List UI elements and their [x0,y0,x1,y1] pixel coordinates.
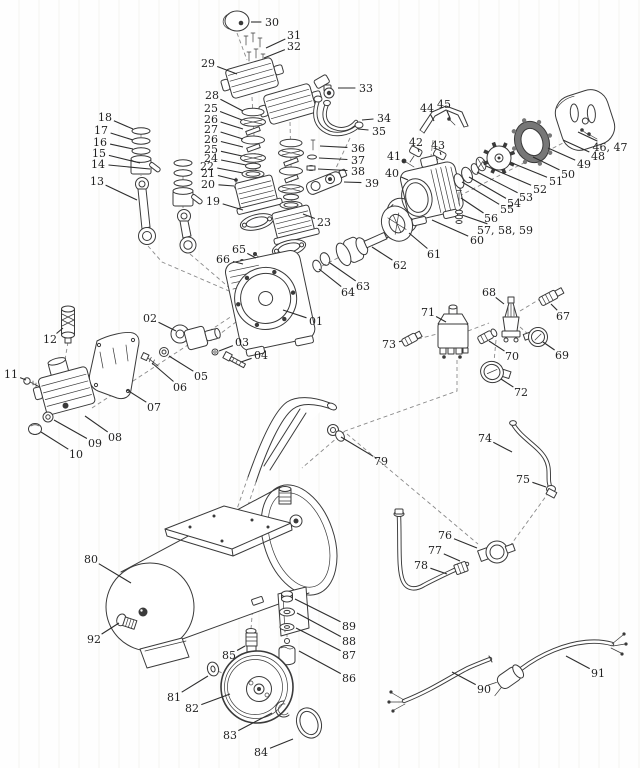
part-number-label: 40 [385,167,399,180]
callout-leader-line [566,656,590,669]
part-number-label: 11 [4,368,18,381]
callout-91: 91 [566,656,605,680]
part-number-label: 67 [556,310,570,323]
wheel-washer-drawing [206,661,220,677]
part-number-label: 04 [254,349,268,362]
callout-20: 20 [201,178,234,191]
air-filter-drawing [223,11,249,31]
part-number-label: 51 [549,175,563,188]
part-number-label: 72 [514,386,528,399]
callout-leader-line [219,185,235,186]
callout-70: 70 [489,341,519,363]
callout-leader-line [296,628,341,651]
callout-leader-line [219,346,233,351]
part-number-label: 91 [591,667,605,680]
part-number-label: 88 [342,635,356,648]
fitting-70-drawing [477,328,498,344]
fitting-79-drawing [328,425,347,443]
part-number-label: 03 [235,336,249,349]
part-number-label: 85 [222,649,236,662]
callout-67: 67 [551,304,570,323]
part-number-label: 43 [431,139,445,152]
check-valve-drawing [478,541,516,563]
part-number-label: 10 [69,448,83,461]
part-number-label: 75 [516,473,530,486]
part-number-label: 29 [201,57,215,70]
part-number-label: 66 [216,253,230,266]
callout-leader-line [454,539,477,548]
callout-leader-line [319,269,341,287]
part-number-label: 69 [555,349,569,362]
callout-leader-line [489,341,505,351]
callout-leader-line [221,132,243,139]
part-number-label: 83 [223,729,237,742]
head-bolts-drawing [244,33,265,63]
callout-leader-line [114,121,133,129]
part-number-label: 82 [185,702,199,715]
callout-leader-line [461,198,484,213]
part-number-label: 06 [173,381,187,394]
callout-leader-line [358,129,369,130]
washer-09-drawing [43,412,53,422]
callout-75: 75 [516,473,546,487]
part-number-label: 34 [377,112,391,125]
part-number-label: 35 [372,125,386,138]
part-number-label: 08 [108,431,122,444]
part-number-label: 42 [409,136,423,149]
callout-leader-line [111,133,133,140]
air-compressor-exploded-view: 3031322933343518171615141328252627262524… [0,0,640,768]
part-number-label: 50 [561,168,575,181]
callout-13: 13 [90,175,137,200]
callout-29: 29 [201,57,237,74]
manifold-drawing [305,168,349,196]
part-number-label: 80 [84,553,98,566]
callout-leader-line [169,356,193,371]
callout-64: 64 [319,269,355,299]
callout-leader-line [543,342,555,350]
callout-leader-line [512,163,547,177]
callout-74: 74 [478,432,512,452]
manifold-hardware-drawing [307,140,317,171]
callout-leader-line [493,442,512,452]
piston-assembly-2-drawing [173,160,203,253]
callout-leader-line [496,297,504,304]
callout-leader-line [399,341,402,342]
part-number-label: 07 [147,401,161,414]
callout-leader-line [320,146,347,147]
pressure-switch-drawing [438,305,468,359]
callout-leader-line [264,50,285,58]
part-number-label: 48 [591,150,605,163]
callout-90: 90 [452,672,491,696]
callout-11: 11 [4,368,26,381]
part-number-label: 73 [382,338,396,351]
part-number-label: 05 [194,370,208,383]
callout-03: 03 [219,336,249,351]
part-number-label: 23 [317,216,331,229]
callout-leader-line [477,172,518,193]
callout-leader-line [221,151,242,156]
callout-leader-line [221,142,243,148]
fan-drawing [478,137,520,179]
callout-leader-line [221,122,243,129]
filter-12-drawing [62,306,75,343]
callout-leader-line [501,379,513,387]
part-number-label: 45 [437,98,451,111]
callout-leader-line [372,247,392,260]
plug-10-drawing [29,424,42,435]
part-number-label: 13 [90,175,104,188]
diagram-page: 3031322933343518171615141328252627262524… [0,0,640,768]
callout-leader-line [106,185,137,200]
part-number-label: 70 [505,350,519,363]
callout-05: 05 [169,356,208,383]
callout-69: 69 [543,342,569,362]
part-number-label: 38 [351,165,365,178]
part-number-label: 81 [167,691,181,704]
part-number-label: 74 [478,432,492,445]
callout-84: 84 [254,739,293,759]
callout-leader-line [54,420,87,439]
callout-leader-line [127,390,146,402]
callout-leader-line [241,358,252,362]
part-number-label: 90 [477,683,491,696]
part-number-label: 14 [91,158,105,171]
callout-09: 09 [54,420,102,450]
callout-leader-line [237,646,245,651]
part-number-label: 02 [143,312,157,325]
callout-leader-line [152,363,174,382]
part-number-label: 01 [309,315,323,328]
callout-leader-line [220,99,243,111]
discharge-tubes-drawing [314,96,363,134]
callout-44: 44 [420,102,434,121]
part-number-label: 87 [342,649,356,662]
callout-02: 02 [143,312,176,331]
callout-leader-line [409,233,427,249]
part-number-label: 61 [427,248,441,261]
part-number-label: 92 [87,633,101,646]
mount-hardware-stack-drawing [280,591,295,631]
part-number-label: 53 [519,191,533,204]
bearing-washers-drawing [311,251,331,273]
callout-10: 10 [41,432,83,461]
part-number-label: 52 [533,183,547,196]
callout-leader-line [270,739,293,748]
callout-12: 12 [43,328,63,346]
callout-leader-line [85,416,108,432]
callout-68: 68 [482,286,504,304]
callout-07: 07 [127,390,161,414]
part-number-label: 55 [500,203,514,216]
callout-62: 62 [372,247,407,272]
gauge-69-drawing [523,328,547,347]
head-08-drawing [27,351,96,417]
callout-61: 61 [409,233,441,261]
callout-33: 33 [338,82,373,95]
part-number-label: 78 [414,559,428,572]
callout-71: 71 [421,306,446,322]
part-number-label: 64 [341,286,355,299]
cylinder-gasket-1-drawing [239,211,276,234]
callout-leader-line [548,148,575,160]
hub-cap-drawing [292,704,326,742]
callout-72: 72 [501,379,528,399]
part-number-label: 68 [482,286,496,299]
part-number-label: 39 [365,177,379,190]
callout-leader-line [362,119,374,120]
part-number-label: 57, 58, 59 [477,224,533,237]
motor-bolt-drawing [402,159,414,167]
callout-leader-line [218,176,236,181]
part-number-label: 49 [577,158,591,171]
callout-leader-line [444,554,460,561]
callout-92: 92 [87,623,119,646]
callout-32: 32 [264,40,301,58]
part-number-label: 84 [254,746,268,759]
pump-parts-left-drawing [141,322,247,369]
callout-leader-line [299,651,341,674]
callout-leader-line [266,39,285,48]
callout-leader-line [533,157,560,170]
part-number-label: 19 [206,195,220,208]
callout-leader-line [344,182,361,183]
callout-79: 79 [341,437,388,468]
piston-assembly-1-drawing [131,128,161,245]
fitting-75-drawing [546,486,557,498]
callout-leader-line [330,263,356,281]
callout-77: 77 [428,544,460,561]
part-number-label: 32 [287,40,301,53]
callout-leader-line [110,144,133,149]
callout-leader-line [452,672,476,685]
handle-drawing [248,398,338,482]
callout-80: 80 [84,553,131,583]
callout-81: 81 [167,676,208,704]
callout-78: 78 [414,559,447,574]
callout-73: 73 [382,338,402,351]
callout-leader-line [486,166,531,185]
callout-06: 06 [152,363,187,394]
callout-39: 39 [344,177,379,190]
callout-41: 41 [387,150,404,163]
valve-stack-2-drawing [279,139,304,209]
part-number-label: 12 [43,333,57,346]
power-cord-91-drawing [486,632,628,697]
part-number-label: 33 [359,82,373,95]
part-number-label: 71 [421,306,435,319]
tube-nut-77-drawing [454,561,469,575]
callout-leader-line [430,568,447,574]
part-number-label: 60 [470,234,484,247]
callout-leader-line [220,112,242,121]
part-number-label: 65 [232,243,246,256]
callout-leader-line [319,158,347,160]
part-number-label: 41 [387,150,401,163]
part-number-label: 18 [98,111,112,124]
callout-leader-line [41,432,68,449]
part-number-label: 62 [393,259,407,272]
callout-leader-line [532,482,546,487]
part-number-label: 89 [342,620,356,633]
part-number-label: 20 [201,178,215,191]
callout-34: 34 [362,112,391,125]
callout-53: 53 [477,172,533,204]
part-number-label: 77 [428,544,442,557]
callout-leader-line [221,160,246,165]
callout-leader-line [432,220,468,236]
callout-leader-line [159,322,177,331]
screw-11-drawing [24,378,40,387]
part-number-label: 28 [205,89,219,102]
callout-65: 65 [232,243,256,258]
fitting-67-drawing [538,286,564,306]
part-number-label: 09 [88,437,102,450]
callout-leader-line [217,168,243,173]
regulator-drawing [502,297,520,342]
part-number-label: 30 [265,16,279,29]
part-number-label: 76 [438,529,452,542]
callout-leader-line [341,437,373,456]
backplate-07-drawing [89,332,139,398]
tank-drawing [106,475,351,651]
part-number-label: 79 [374,455,388,468]
cylinder-2-drawing [268,204,320,245]
callout-leader-line [182,676,208,692]
part-number-label: 63 [356,280,370,293]
callout-04: 04 [241,349,268,362]
part-number-label: 86 [342,672,356,685]
callout-30: 30 [251,16,279,29]
part-number-label: 44 [420,102,434,115]
